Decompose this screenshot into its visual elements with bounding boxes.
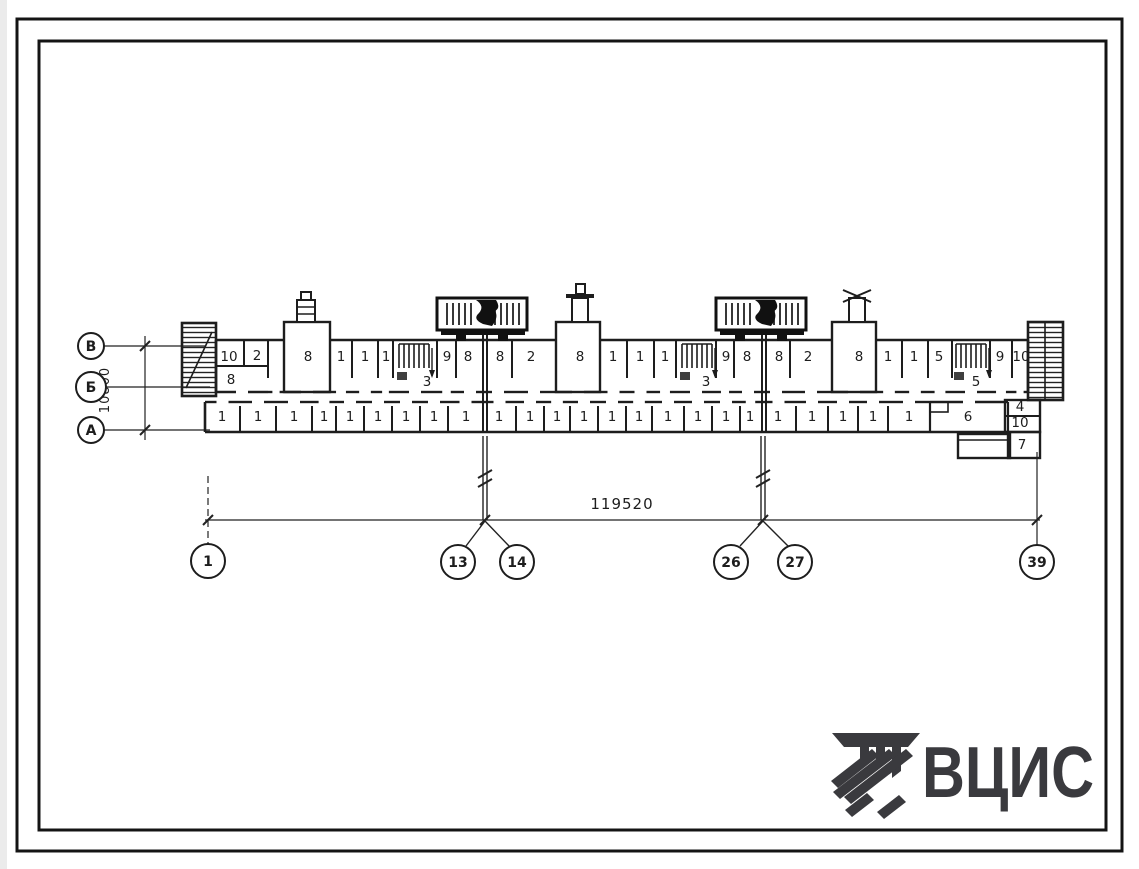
room-label-1: 1 (664, 409, 673, 425)
room-label-9: 9 (996, 349, 1005, 365)
room-label-1: 1 (869, 409, 878, 425)
room-label-5: 5 (935, 349, 944, 365)
grid-bubble-label: 39 (1027, 555, 1046, 571)
grid-bubble-14: 14 (500, 545, 534, 579)
bay-3 (832, 290, 876, 392)
room-label-3: 3 (423, 374, 432, 390)
room-label-1: 1 (910, 349, 919, 365)
room-label-5: 5 (972, 374, 981, 390)
room-label-1: 1 (608, 409, 617, 425)
room-label-8: 8 (227, 372, 236, 388)
room-label-1: 1 (402, 409, 411, 425)
total-length-dimension-text: 119520 (590, 495, 653, 513)
grid-bubble-label: 26 (721, 555, 740, 571)
room-label-1: 1 (337, 349, 346, 365)
room-label-9: 9 (443, 349, 452, 365)
room-label-8: 8 (855, 349, 864, 365)
axis-bubble-label: В (86, 339, 97, 355)
room-label-1: 1 (346, 409, 355, 425)
room-label-1: 1 (905, 409, 914, 425)
room-label-2: 2 (804, 349, 813, 365)
axis-bubble-label: А (86, 423, 97, 439)
section-witness-13-14 (478, 436, 492, 520)
inner-border-frame (39, 41, 1106, 830)
room-label-1: 1 (746, 409, 755, 425)
outer-border-frame (17, 19, 1122, 851)
room-label-4: 4 (1016, 399, 1025, 415)
room-label-1: 1 (635, 409, 644, 425)
room-label-2: 2 (527, 349, 536, 365)
room-label-1: 1 (320, 409, 329, 425)
room-label-9: 9 (722, 349, 731, 365)
room-label-1: 1 (839, 409, 848, 425)
stair-room-hatch (680, 344, 718, 380)
room-label-3: 3 (702, 374, 711, 390)
room-label-1: 1 (694, 409, 703, 425)
room-label-1: 1 (218, 409, 227, 425)
upper-band-outline (216, 340, 1028, 392)
grid-bubble-label: 1 (203, 554, 213, 570)
axis-bubble-Б: Б (76, 372, 106, 402)
room-label-1: 1 (361, 349, 370, 365)
room-label-1: 1 (808, 409, 817, 425)
room-label-1: 1 (884, 349, 893, 365)
room-label-1: 1 (462, 409, 471, 425)
grid-bubble-26: 26 (714, 545, 748, 579)
room-label-10: 10 (1011, 415, 1028, 431)
room-label-1: 1 (722, 409, 731, 425)
room-label-6: 6 (964, 409, 973, 425)
stairwell-right (1028, 322, 1063, 400)
room-label-8: 8 (743, 349, 752, 365)
grid-bubble-label: 14 (507, 555, 527, 571)
room-label-10: 10 (1012, 349, 1029, 365)
logo-text: ВЦИС (922, 733, 1094, 813)
room-label-1: 1 (290, 409, 299, 425)
room-label-1: 1 (382, 349, 391, 365)
room-label-1: 1 (526, 409, 535, 425)
grid-bubble-13: 13 (441, 545, 475, 579)
dimension-line-group: 119520 (203, 436, 1042, 547)
room-label-2: 2 (253, 348, 262, 364)
room-label-1: 1 (374, 409, 383, 425)
building-plan: 1028811139882811139882811559101111111111… (182, 284, 1063, 458)
axis-bubble-label: Б (86, 380, 97, 396)
room-label-1: 1 (254, 409, 263, 425)
grid-bubble-39: 39 (1020, 545, 1054, 579)
room-label-10: 10 (220, 349, 237, 365)
bay-2 (556, 284, 600, 392)
room-label-1: 1 (495, 409, 504, 425)
room-label-1: 1 (661, 349, 670, 365)
room-label-1: 1 (636, 349, 645, 365)
room-label-1: 1 (609, 349, 618, 365)
room-label-1: 1 (774, 409, 783, 425)
room-label-8: 8 (775, 349, 784, 365)
grid-bubble-label: 13 (448, 555, 467, 571)
logo: ВЦИС (831, 733, 1094, 819)
room-label-7: 7 (1018, 437, 1027, 453)
section-witness-26-27 (756, 436, 770, 520)
stairwell-left (182, 323, 216, 396)
room-label-8: 8 (464, 349, 473, 365)
drawing-sheet: 10800 (0, 0, 1139, 869)
room-label-8: 8 (304, 349, 313, 365)
room-label-8: 8 (576, 349, 585, 365)
room-label-1: 1 (580, 409, 589, 425)
floor-plan-drawing: 10800 (0, 0, 1139, 869)
room-number-labels: 1028811139882811139882811559101111111111… (218, 348, 1030, 453)
room-label-1: 1 (553, 409, 562, 425)
grid-bubble-1: 1 (191, 544, 225, 578)
scan-edge-shadow (0, 0, 7, 869)
room-label-1: 1 (430, 409, 439, 425)
grid-bubble-27: 27 (778, 545, 812, 579)
axis-bubble-А: А (78, 417, 104, 443)
axis-bubble-В: В (78, 333, 104, 359)
logo-emblem-icon (831, 733, 920, 819)
entrance-porch (437, 298, 527, 432)
bay-1 (284, 292, 330, 392)
bubble-leaders (466, 521, 788, 547)
room-label-8: 8 (496, 349, 505, 365)
grid-bubble-label: 27 (785, 555, 804, 571)
